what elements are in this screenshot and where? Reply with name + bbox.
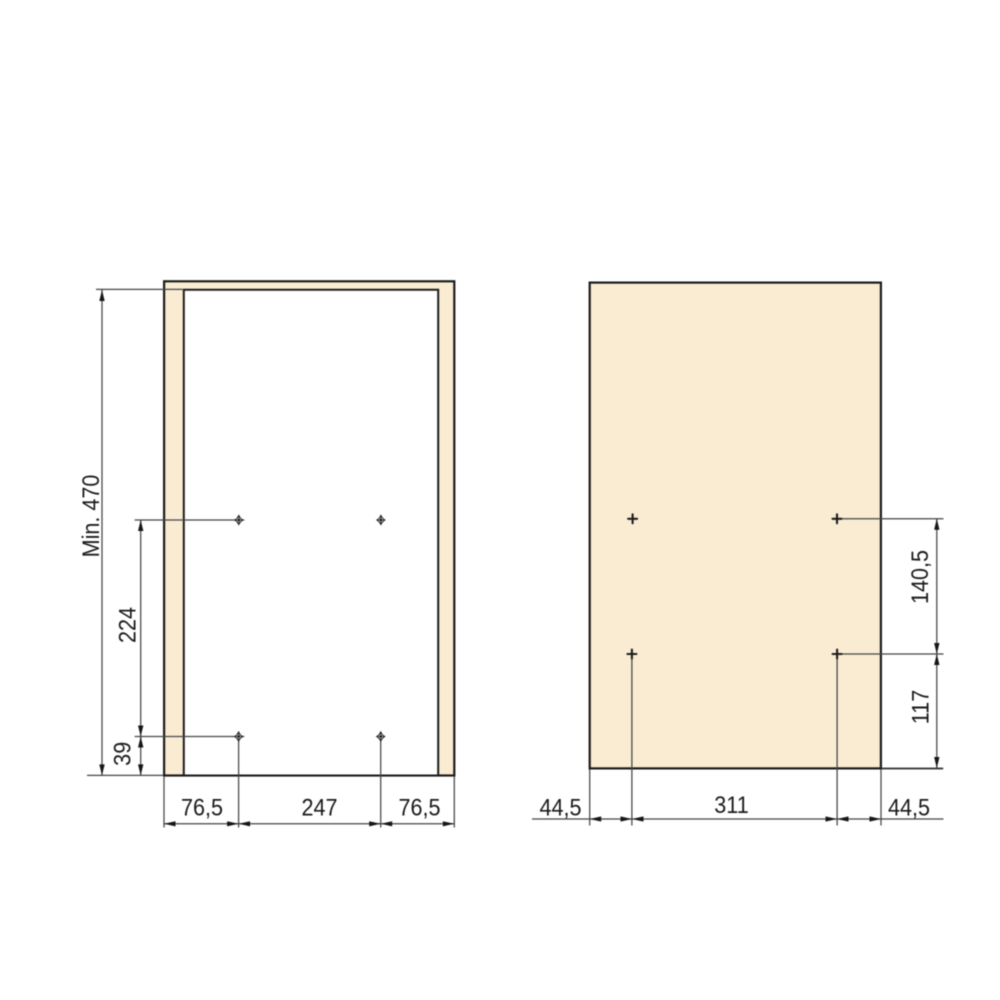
svg-text:247: 247 <box>301 793 337 820</box>
svg-text:224: 224 <box>113 607 140 643</box>
svg-text:39: 39 <box>108 742 135 766</box>
svg-text:Min. 470: Min. 470 <box>77 475 104 558</box>
svg-text:44,5: 44,5 <box>888 793 930 820</box>
svg-text:311: 311 <box>714 791 748 818</box>
svg-text:76,5: 76,5 <box>181 793 223 820</box>
svg-text:140,5: 140,5 <box>906 550 933 604</box>
svg-text:117: 117 <box>906 690 933 724</box>
svg-text:44,5: 44,5 <box>539 793 581 820</box>
svg-text:76,5: 76,5 <box>398 793 440 820</box>
